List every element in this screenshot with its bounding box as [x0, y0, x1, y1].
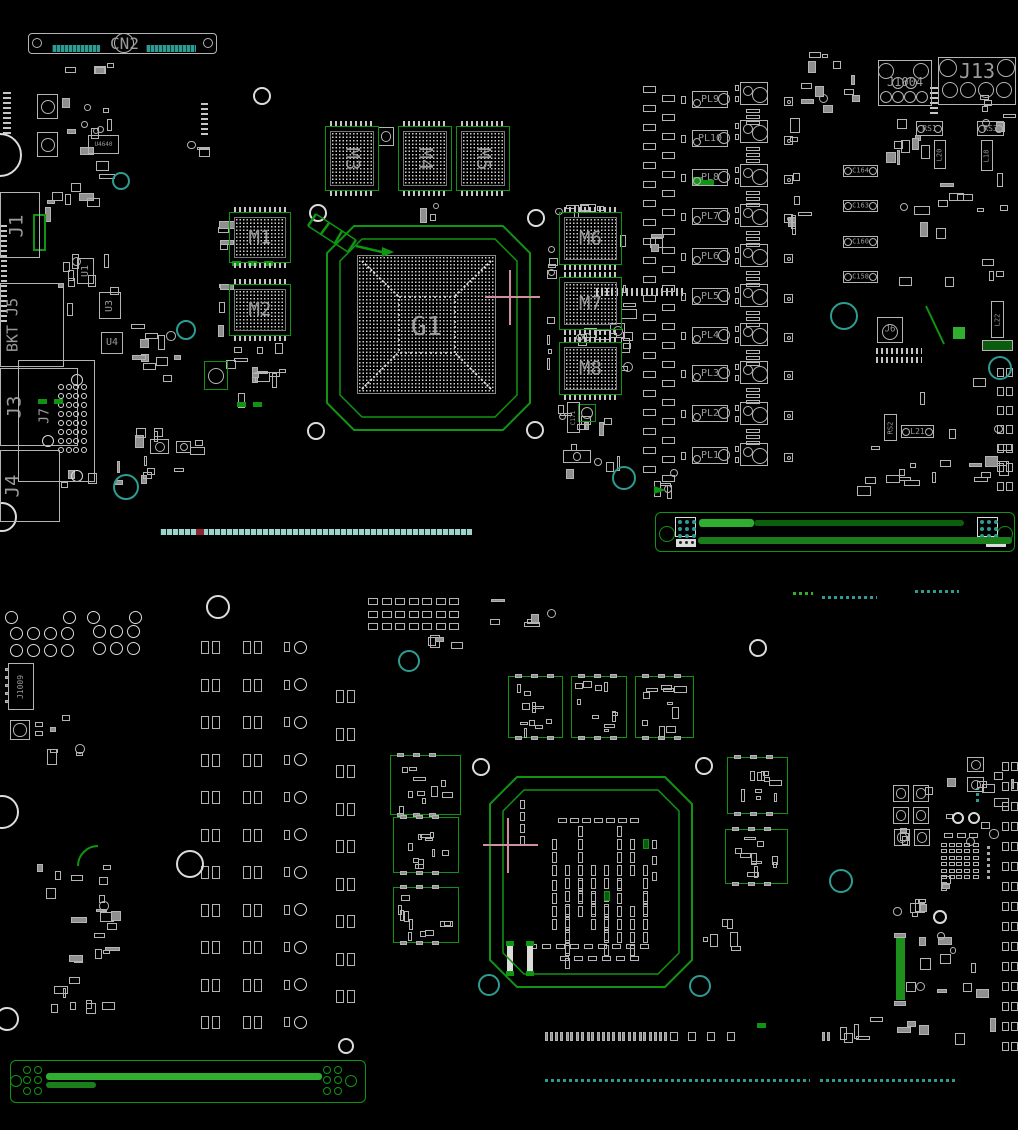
component	[431, 786, 438, 797]
component	[659, 1032, 662, 1041]
component	[417, 791, 424, 795]
component	[1002, 762, 1009, 771]
component	[368, 611, 378, 618]
circle-pad	[334, 1066, 342, 1074]
dashed-trace	[822, 596, 877, 599]
component	[643, 162, 656, 169]
component	[941, 843, 947, 847]
component	[67, 129, 76, 135]
circle-pad	[693, 373, 701, 381]
label-U3: U3	[105, 299, 115, 311]
component	[545, 1032, 548, 1041]
inductor-label-PL7: PL7	[701, 212, 719, 222]
component	[5, 684, 9, 687]
circle-pad	[787, 257, 791, 261]
component	[604, 878, 609, 889]
component	[199, 148, 210, 157]
component	[531, 674, 538, 678]
component	[212, 641, 220, 654]
component	[336, 840, 344, 853]
component	[578, 893, 583, 904]
circle-pad	[752, 407, 768, 423]
component	[195, 440, 204, 446]
component	[71, 917, 87, 923]
component	[54, 986, 68, 994]
gold-finger-bar	[699, 519, 754, 527]
component	[914, 206, 930, 215]
component	[746, 394, 760, 398]
component	[1006, 463, 1013, 472]
component	[997, 482, 1004, 491]
component	[95, 67, 105, 74]
component	[524, 691, 532, 696]
component	[643, 276, 656, 283]
component	[409, 767, 417, 771]
component	[588, 956, 597, 961]
component	[45, 207, 51, 222]
component	[347, 765, 355, 778]
label-RS1: RS1	[922, 125, 936, 133]
circle-pad	[84, 104, 91, 111]
component	[425, 930, 433, 936]
circle-pad	[880, 91, 892, 103]
component	[565, 865, 570, 876]
component	[617, 880, 622, 891]
component	[621, 338, 630, 353]
component	[284, 755, 290, 765]
component	[565, 878, 570, 889]
component	[570, 1032, 573, 1041]
component	[578, 852, 583, 863]
teal-ring	[689, 975, 711, 997]
component	[212, 829, 220, 842]
teal-ring	[113, 474, 139, 500]
component	[610, 674, 617, 678]
circle-pad	[896, 810, 907, 821]
component	[746, 231, 760, 235]
white-ring	[952, 812, 964, 824]
component	[681, 370, 686, 378]
component	[643, 143, 656, 150]
component	[949, 429, 957, 440]
component	[574, 956, 583, 961]
component	[964, 856, 970, 860]
component	[284, 1017, 290, 1027]
component	[654, 1032, 657, 1041]
component	[254, 866, 262, 879]
component	[964, 862, 970, 866]
green-pad	[953, 327, 965, 339]
circle-pad	[937, 932, 945, 940]
component	[382, 611, 392, 618]
circle-pad	[97, 126, 104, 133]
component	[617, 919, 622, 930]
component	[591, 878, 596, 889]
component	[444, 921, 451, 926]
circle-pad	[127, 642, 140, 655]
component	[754, 866, 758, 878]
component	[1011, 862, 1018, 871]
white-ring	[206, 595, 230, 619]
gold-finger-bar	[754, 520, 964, 526]
component	[102, 1002, 115, 1010]
component	[919, 1025, 929, 1034]
component	[347, 803, 355, 816]
component	[201, 904, 209, 917]
component	[606, 818, 615, 823]
circle-pad	[345, 1075, 357, 1087]
component	[212, 979, 220, 992]
component	[735, 218, 739, 224]
component	[1002, 1042, 1009, 1051]
component	[449, 598, 459, 605]
circle-pad	[323, 1076, 331, 1084]
component	[552, 893, 557, 904]
component	[1011, 1002, 1018, 1011]
component	[748, 827, 755, 831]
component	[643, 124, 656, 131]
component	[143, 472, 152, 479]
circle-pad	[996, 82, 1012, 98]
circle-pad	[32, 38, 42, 48]
component	[552, 852, 557, 863]
circle-pad	[294, 866, 307, 879]
circle-pad	[323, 1087, 331, 1095]
chip-pins	[234, 336, 286, 341]
component	[212, 791, 220, 804]
via-bar	[507, 944, 513, 972]
component	[517, 684, 520, 692]
component	[336, 690, 344, 703]
component	[746, 115, 760, 119]
component	[63, 262, 69, 272]
component	[790, 118, 800, 133]
chip-label-M6: M6	[579, 229, 602, 248]
component	[163, 375, 172, 381]
label-C164: C164	[852, 168, 869, 175]
component	[336, 915, 344, 928]
component	[416, 885, 423, 889]
component	[604, 729, 609, 733]
component	[643, 865, 648, 876]
component	[945, 277, 954, 287]
component	[652, 872, 657, 881]
label-RS2: RS2	[887, 421, 894, 434]
component	[576, 1032, 579, 1041]
component	[920, 222, 927, 237]
label-J1009: J1009	[17, 674, 25, 698]
component	[643, 219, 656, 226]
circle-pad	[752, 125, 768, 141]
component	[764, 882, 771, 886]
circle-pad	[900, 203, 908, 211]
component	[744, 837, 756, 841]
chip-label-M7: M7	[579, 294, 602, 313]
component	[51, 1004, 58, 1013]
component	[941, 849, 947, 853]
component	[617, 839, 622, 850]
white-ring	[0, 1007, 19, 1031]
component	[964, 875, 970, 879]
component	[556, 944, 565, 949]
pad-dot	[987, 520, 991, 524]
circle-pad	[925, 428, 933, 436]
circle-pad	[752, 366, 768, 382]
component	[442, 850, 449, 856]
component	[117, 461, 120, 473]
component	[662, 209, 675, 216]
component	[284, 717, 290, 727]
chip-pins	[564, 330, 617, 335]
component	[973, 378, 986, 387]
label-U4640: U4640	[94, 142, 112, 148]
component	[809, 52, 821, 58]
circle-pad	[61, 627, 74, 640]
component	[604, 865, 609, 876]
component	[662, 266, 675, 273]
component	[643, 428, 656, 435]
component	[973, 843, 979, 847]
component	[886, 152, 896, 162]
chip-pins	[564, 337, 617, 342]
component	[920, 958, 930, 970]
white-ring	[0, 795, 19, 829]
chip-label-M8: M8	[579, 359, 602, 378]
component	[844, 89, 854, 95]
component	[746, 311, 760, 315]
component	[643, 333, 656, 340]
circle-pad	[23, 1087, 31, 1095]
component	[662, 342, 675, 349]
component	[666, 726, 677, 732]
component	[409, 623, 419, 630]
component	[735, 405, 739, 411]
component	[212, 754, 220, 767]
component	[618, 1032, 621, 1041]
inductor-label-PL6: PL6	[701, 252, 719, 262]
component	[99, 877, 107, 884]
circle-pad	[5, 611, 18, 624]
component	[131, 324, 146, 328]
component	[515, 674, 522, 678]
component	[5, 692, 9, 695]
circle-pad	[294, 941, 307, 954]
component	[201, 941, 209, 954]
component	[662, 304, 675, 311]
component	[347, 915, 355, 928]
solder-pad	[643, 839, 649, 849]
component	[595, 685, 602, 691]
inductor-label-PL2: PL2	[701, 409, 719, 419]
component	[432, 941, 439, 945]
cn2-pads	[52, 45, 100, 52]
component	[681, 96, 686, 104]
component	[662, 228, 675, 235]
label-J4: J4	[4, 475, 23, 498]
circle-pad	[323, 1066, 331, 1074]
component	[643, 919, 648, 930]
component	[107, 119, 112, 131]
component	[662, 190, 675, 197]
component	[735, 364, 739, 370]
circle-pad	[23, 1066, 31, 1074]
component	[1002, 942, 1009, 951]
component	[912, 138, 919, 151]
component	[957, 833, 966, 838]
component	[1011, 982, 1018, 991]
component	[941, 869, 947, 873]
chip-label-M3: M3	[343, 147, 362, 170]
gold-finger-bar	[46, 1073, 322, 1080]
component	[735, 178, 739, 184]
component	[672, 707, 678, 719]
component	[552, 919, 557, 930]
component	[956, 856, 962, 860]
component	[71, 183, 80, 192]
component	[734, 812, 741, 816]
component	[1011, 782, 1018, 791]
component	[96, 161, 109, 171]
pad-dot	[994, 527, 998, 531]
circle-pad	[110, 625, 123, 638]
component	[612, 712, 618, 715]
component	[662, 361, 675, 368]
inductor-label-PL1: PL1	[701, 451, 719, 461]
component	[662, 285, 675, 292]
circle-pad	[869, 273, 877, 281]
component	[591, 1032, 594, 1041]
circle-pad	[294, 978, 307, 991]
component	[382, 623, 392, 630]
circle-pad	[693, 177, 701, 185]
component	[592, 715, 600, 719]
chip-pins	[564, 207, 617, 212]
component	[449, 623, 459, 630]
component	[994, 772, 1003, 780]
circle-pad	[787, 336, 791, 340]
component	[982, 259, 994, 266]
component	[524, 728, 527, 738]
teal-ring	[112, 172, 130, 190]
component	[529, 720, 535, 725]
component	[284, 905, 290, 915]
component	[746, 153, 760, 157]
component	[413, 753, 420, 757]
component	[610, 736, 617, 740]
inductor-label-PL8: PL8	[701, 173, 719, 183]
chip-pins	[403, 121, 447, 126]
circle-pad	[44, 627, 57, 640]
component	[87, 198, 101, 207]
chip-label-G1: G1	[411, 314, 442, 340]
component	[578, 880, 583, 891]
component	[212, 904, 220, 917]
component	[37, 864, 43, 872]
component	[565, 906, 570, 917]
chip-label-M2: M2	[249, 301, 272, 320]
circle-pad	[787, 374, 791, 378]
circle-pad	[787, 297, 791, 301]
circle-pad	[950, 947, 956, 953]
circle-pad	[110, 642, 123, 655]
component	[234, 347, 242, 354]
component	[599, 422, 604, 436]
component	[643, 390, 656, 397]
component	[681, 135, 686, 143]
component	[630, 839, 635, 850]
component	[368, 623, 378, 630]
component	[578, 839, 583, 850]
component	[735, 287, 739, 293]
component	[766, 755, 773, 759]
component	[746, 191, 760, 195]
label-C163: C163	[852, 203, 869, 210]
circle-pad	[548, 246, 556, 254]
component	[400, 871, 407, 875]
component	[336, 728, 344, 741]
component	[552, 880, 557, 891]
circle-pad	[27, 644, 40, 657]
circle-pad	[659, 526, 675, 542]
component	[617, 865, 622, 876]
component	[449, 611, 459, 618]
component	[642, 674, 649, 678]
pad-dot	[980, 520, 984, 524]
white-ring	[472, 758, 490, 776]
circle-pad	[10, 627, 23, 640]
component	[1006, 444, 1013, 453]
memory-footprint[interactable]	[393, 817, 459, 873]
circle-pad	[203, 38, 213, 48]
connector-edge-right[interactable]	[655, 512, 1015, 552]
circle-pad	[13, 723, 26, 736]
circle-pad	[75, 744, 85, 754]
pad-row	[201, 102, 208, 135]
component	[212, 716, 220, 729]
component	[212, 866, 220, 879]
white-ring	[253, 87, 271, 105]
component	[735, 247, 739, 253]
board-canvas[interactable]: M1M2M3M4M5M6M7M8G1PL9PL10PL8PL7PL6PL5PL4…	[0, 0, 1018, 1130]
component	[662, 171, 675, 178]
component	[144, 456, 148, 465]
component	[956, 849, 962, 853]
component	[792, 222, 795, 235]
component	[436, 598, 446, 605]
component	[681, 174, 686, 182]
component	[395, 623, 405, 630]
component	[662, 133, 675, 140]
component	[566, 1032, 569, 1041]
component	[949, 862, 955, 866]
component	[801, 83, 812, 89]
component	[822, 1032, 825, 1041]
circle-pad	[989, 829, 998, 838]
circle-pad	[752, 169, 768, 185]
circle-pad	[693, 296, 701, 304]
component	[570, 818, 579, 823]
component	[420, 834, 431, 838]
component	[1011, 902, 1018, 911]
circle-pad	[916, 91, 928, 103]
circle-pad	[166, 331, 176, 341]
component	[111, 911, 121, 920]
component	[746, 435, 760, 439]
component	[997, 173, 1003, 188]
component	[937, 989, 948, 993]
component	[347, 953, 355, 966]
dashed-trace	[545, 1079, 810, 1082]
